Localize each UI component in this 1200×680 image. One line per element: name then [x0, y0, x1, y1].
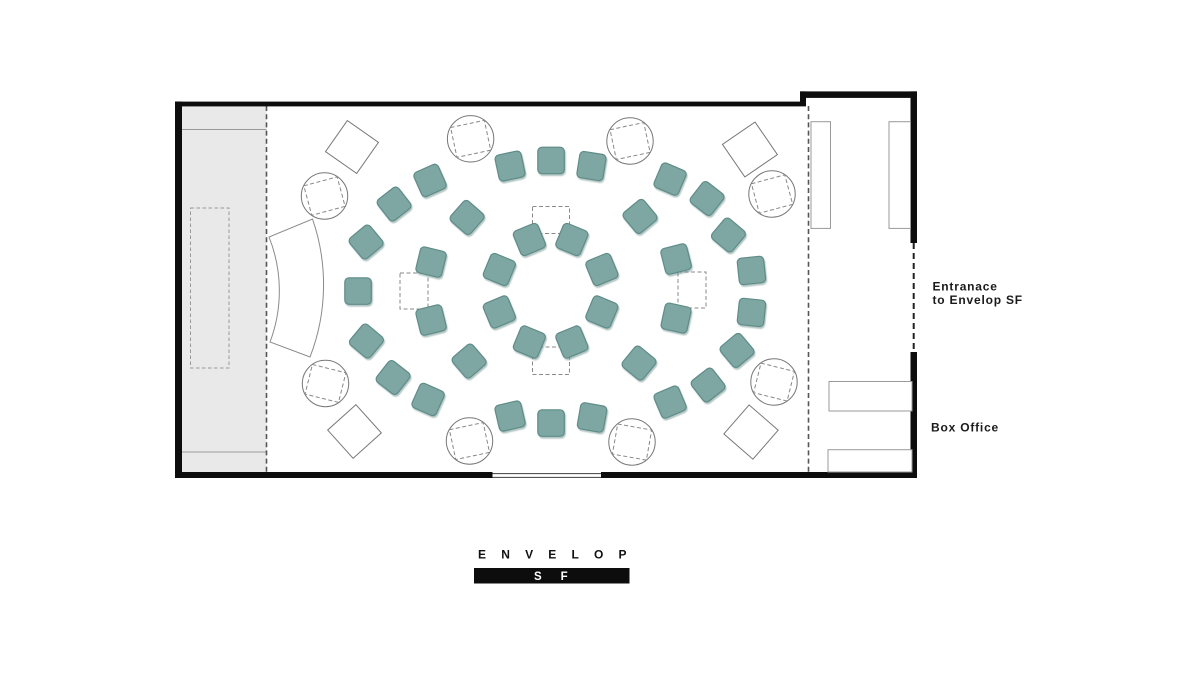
svg-text:Entranace: Entranace	[933, 280, 998, 294]
svg-text:SF: SF	[534, 571, 587, 583]
svg-text:ENVELOP: ENVELOP	[478, 548, 642, 562]
svg-text:to Envelop SF: to Envelop SF	[933, 293, 1023, 307]
svg-text:Box Office: Box Office	[931, 421, 999, 435]
